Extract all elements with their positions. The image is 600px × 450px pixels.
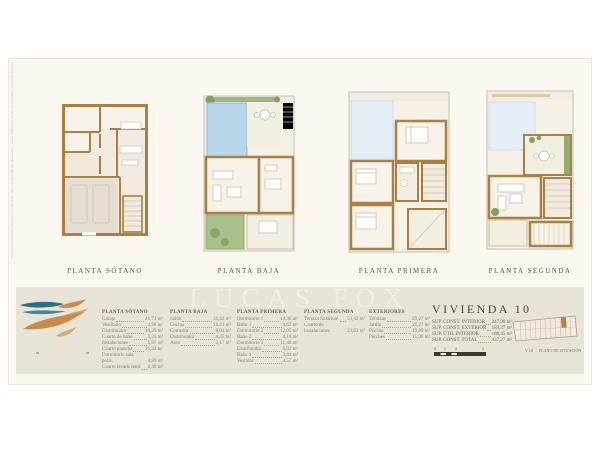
wave-orange [56, 327, 76, 337]
unit-title: VIVIENDA 10 [432, 302, 512, 317]
highlighted-unit [561, 317, 567, 328]
site-plan-caption: PLANO DE SITUACIÓN [539, 348, 581, 353]
first-floor-plan [348, 91, 450, 253]
schedule-basement: PLANTA SÓTANO Garaje41,74 m² Vestíbulo4,… [102, 310, 163, 371]
scale-label: 2 [455, 346, 457, 351]
schedule-title: PLANTA SEGUNDA [304, 310, 365, 315]
plant-icon [537, 136, 541, 140]
caption-second: PLANTA SEGUNDA [466, 267, 594, 275]
wave-orange [23, 312, 82, 329]
scale-bar: 0 1 2 5 [434, 347, 490, 357]
schedule-ground: PLANTA BAJA Salón31,42 m² Cocina16,21 m²… [170, 310, 231, 347]
site-plan-drawing [509, 312, 581, 346]
terrace-deck [247, 103, 281, 147]
plant-icon [529, 137, 535, 143]
scale-label: 1 [444, 346, 446, 351]
caption-first: PLANTA PRIMERA [328, 267, 470, 275]
shrub-icon [210, 228, 220, 238]
bed-icon [406, 127, 428, 143]
schedule-row: Aseo3,17 m² [170, 341, 231, 347]
unit-summary: VIVIENDA 10 SUP. CONST. INTERIOR247,90 m… [432, 302, 512, 344]
development-logo [18, 298, 90, 346]
schedule-second: PLANTA SEGUNDA Terraza Solárium53,42 m² … [304, 310, 365, 335]
bed-icon [356, 169, 376, 184]
roof-strip [350, 93, 448, 101]
schedule-title: PLANTA SÓTANO [102, 310, 163, 315]
wave-teal [22, 310, 66, 314]
room [65, 152, 100, 177]
second-floor-plan [486, 90, 574, 250]
schedule-title: PLANTA BAJA [170, 310, 231, 315]
site-plan: V 10 PLANO DE SITUACIÓN [509, 312, 581, 360]
basement-floor-plan [62, 104, 148, 236]
schedule-exteriors: EXTERIORES Terrazas29,27 m² Jardín21,27 … [369, 310, 430, 341]
pool-void [351, 101, 393, 159]
schedule-row: Dormitorio sala poliv.4,89 m² [102, 353, 163, 365]
shrub-icon [221, 238, 229, 246]
schedule-title: EXTERIORES [369, 310, 430, 315]
scale-label: 0 [434, 346, 436, 351]
room [65, 132, 90, 152]
hedge [206, 97, 278, 102]
schedule-row: Cuarto lavado tend.6,40 m² [102, 365, 163, 371]
summary-row: SUP. CONST. TOTAL437,27 m² [432, 338, 512, 344]
pool [207, 103, 247, 157]
site-unit-label: V 10 [525, 348, 533, 353]
hedge-strip [564, 136, 570, 174]
wave-teal [20, 302, 64, 308]
schedule-row: Vestidor4,57 m² [237, 359, 298, 365]
small-terrace [489, 220, 527, 246]
caption-basement: PLANTA SÓTANO [42, 267, 168, 275]
schedule-title: PLANTA PRIMERA [237, 310, 298, 315]
garage [65, 179, 118, 233]
pergola-beam [492, 94, 550, 97]
room [65, 107, 100, 132]
schedule-row: Cuarto de instalaciones23,83 m² [304, 323, 365, 335]
plant-icon [491, 208, 499, 216]
wave-orange [58, 299, 86, 308]
tree-icon [274, 97, 280, 103]
bed-icon [356, 213, 376, 229]
caption-ground: PLANTA BAJA [183, 267, 315, 275]
ground-floor-plan [203, 95, 295, 252]
entry-furniture [259, 221, 277, 233]
edge-disclaimer: Este plano es meramente orientativo. Las… [11, 61, 14, 259]
schedule-row: Porches15,06 m² [369, 335, 430, 341]
scale-label: 5 [482, 346, 484, 351]
scale-segments [434, 352, 486, 356]
schedule-first: PLANTA PRIMERA Dormitorio 114,36 m² Baño… [237, 310, 298, 365]
garage-door-opening [82, 232, 96, 236]
solarium-room [530, 222, 571, 246]
